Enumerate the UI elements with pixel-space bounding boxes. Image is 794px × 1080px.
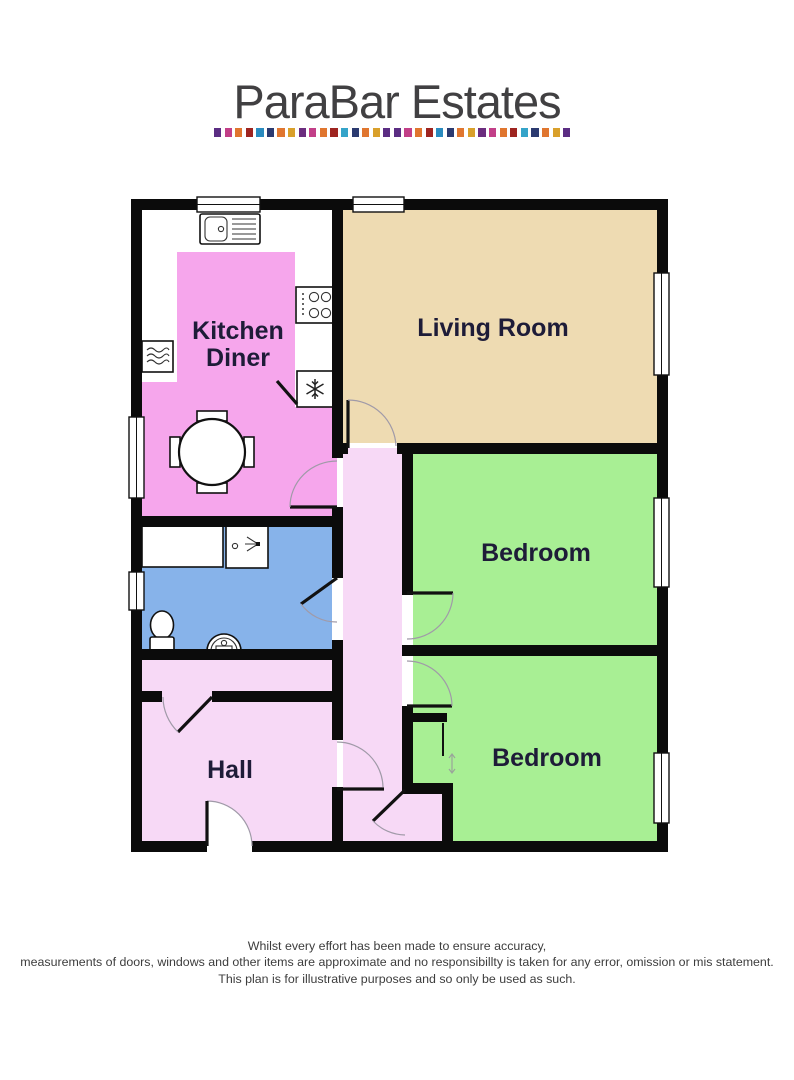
room-hall	[142, 655, 337, 841]
shower-icon	[226, 524, 268, 568]
oven-icon	[142, 341, 173, 372]
page: ParaBar Estates	[0, 0, 794, 1080]
window-icon-bathroom-left	[129, 572, 144, 610]
window-icon-kitchen-top	[197, 197, 260, 212]
window-icon-living-top	[353, 197, 404, 212]
disclaimer-line3: This plan is for illustrative purposes a…	[0, 971, 794, 987]
bath-icon	[142, 526, 223, 567]
window-icon-bedroom1-right	[654, 498, 669, 587]
disclaimer-line2: measurements of doors, windows and other…	[0, 954, 794, 970]
hall-corridor	[343, 448, 402, 841]
window-icon-living-right	[654, 273, 669, 375]
disclaimer: Whilst every effort has been made to ens…	[0, 938, 794, 987]
label-kitchen-line2: Diner	[206, 344, 270, 372]
hob-icon	[296, 287, 333, 323]
toilet-icon	[150, 611, 174, 651]
label-bedroom-1: Bedroom	[481, 539, 591, 567]
label-bedroom-2: Bedroom	[492, 744, 602, 772]
label-kitchen-line1: Kitchen	[192, 317, 284, 345]
label-living-room: Living Room	[417, 314, 568, 342]
window-icon-bedroom2-right	[654, 753, 669, 823]
label-hall: Hall	[207, 756, 253, 784]
sink-icon	[200, 214, 260, 244]
floor-plan: Kitchen Diner Living Room Bedroom Bedroo…	[0, 0, 794, 1080]
window-icon-kitchen-left	[129, 417, 144, 498]
disclaimer-line1: Whilst every effort has been made to ens…	[0, 938, 794, 954]
